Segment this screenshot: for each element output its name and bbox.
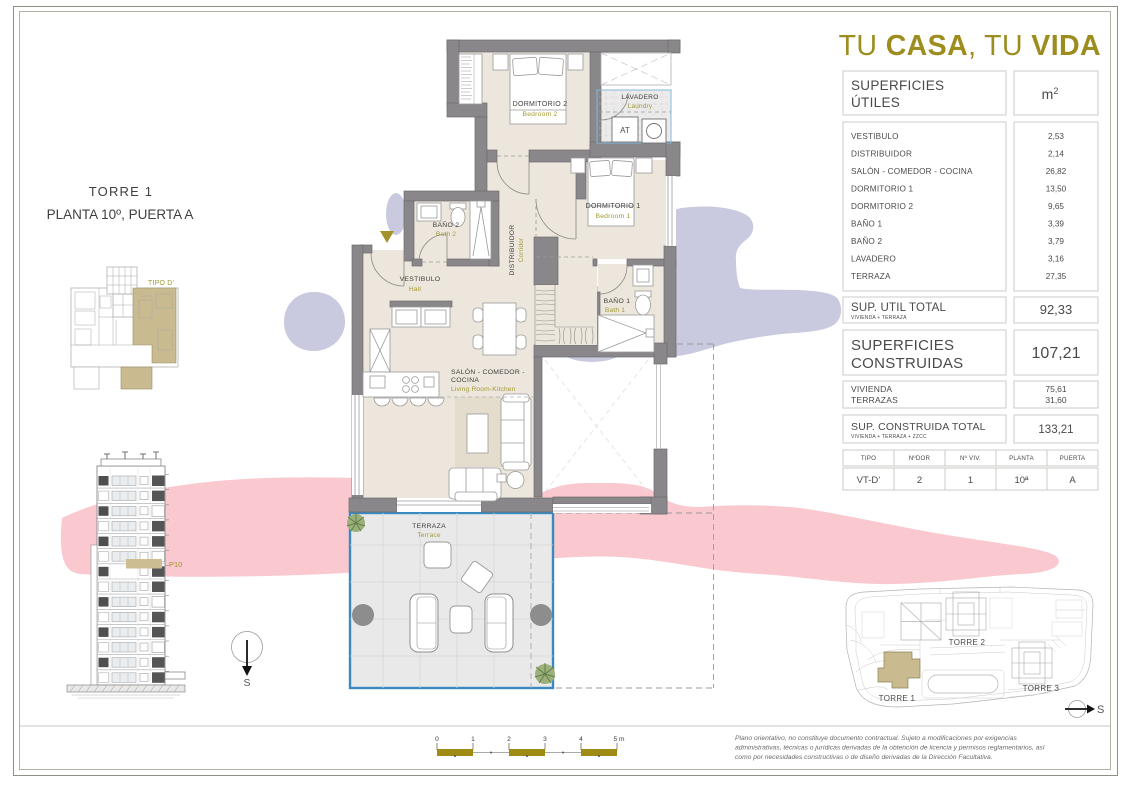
svg-text:PLANTA 10º, PUERTA A: PLANTA 10º, PUERTA A xyxy=(47,207,194,222)
svg-text:PUERTA: PUERTA xyxy=(1060,455,1086,462)
svg-text:92,33: 92,33 xyxy=(1040,302,1073,317)
svg-text:5 m: 5 m xyxy=(614,736,625,743)
svg-text:BAÑO 2: BAÑO 2 xyxy=(851,236,882,246)
svg-text:133,21: 133,21 xyxy=(1038,424,1073,436)
svg-text:TERRAZA: TERRAZA xyxy=(412,523,446,530)
svg-text:DISTRIBUIDOR: DISTRIBUIDOR xyxy=(851,150,912,159)
svg-text:CONSTRUIDAS: CONSTRUIDAS xyxy=(851,355,963,372)
svg-text:SUPERFICIES: SUPERFICIES xyxy=(851,78,944,93)
svg-text:DORMITORIO 2: DORMITORIO 2 xyxy=(851,202,914,211)
svg-text:TERRAZA: TERRAZA xyxy=(851,272,891,281)
svg-text:VIVIENDA + TERRAZA: VIVIENDA + TERRAZA xyxy=(851,315,907,321)
svg-text:75,61: 75,61 xyxy=(1045,384,1067,394)
svg-text:Plano orientativo, no constitu: Plano orientativo, no constituye documen… xyxy=(735,735,1017,742)
svg-text:TERRAZAS: TERRAZAS xyxy=(851,395,898,405)
svg-text:A: A xyxy=(1069,475,1076,486)
svg-text:26,82: 26,82 xyxy=(1046,167,1067,176)
svg-text:TIPO: TIPO xyxy=(861,455,876,462)
svg-text:SALÓN - COMEDOR -: SALÓN - COMEDOR - xyxy=(451,367,525,376)
svg-text:SALÓN - COMEDOR - COCINA: SALÓN - COMEDOR - COCINA xyxy=(851,166,973,176)
svg-text:BAÑO 1: BAÑO 1 xyxy=(851,219,882,229)
svg-text:S: S xyxy=(243,677,250,689)
svg-text:DORMITORIO 1: DORMITORIO 1 xyxy=(586,203,641,210)
svg-text:SUP. UTIL TOTAL: SUP. UTIL TOTAL xyxy=(851,302,946,314)
svg-text:Corridor: Corridor xyxy=(518,237,525,262)
svg-text:3,79: 3,79 xyxy=(1048,237,1064,246)
svg-text:31,60: 31,60 xyxy=(1045,395,1067,405)
svg-text:Living Room-Kitchen: Living Room-Kitchen xyxy=(451,386,516,393)
svg-text:2: 2 xyxy=(507,736,511,743)
svg-text:3: 3 xyxy=(543,736,547,743)
svg-text:como por necesidades construct: como por necesidades constructivas o de … xyxy=(735,754,993,761)
svg-text:VESTIBULO: VESTIBULO xyxy=(400,276,441,283)
svg-text:Bath 1: Bath 1 xyxy=(605,307,625,314)
svg-text:1: 1 xyxy=(471,736,475,743)
svg-text:P10: P10 xyxy=(169,560,182,569)
svg-text:TORRE 1: TORRE 1 xyxy=(89,184,154,199)
svg-text:S: S xyxy=(1097,704,1104,716)
svg-text:Bedroom 2: Bedroom 2 xyxy=(522,111,557,118)
svg-text:Terrace: Terrace xyxy=(417,532,441,539)
svg-text:DORMITORIO 1: DORMITORIO 1 xyxy=(851,185,914,194)
svg-text:1: 1 xyxy=(968,475,973,486)
svg-text:Nº VIV.: Nº VIV. xyxy=(960,455,981,462)
svg-text:107,21: 107,21 xyxy=(1032,345,1081,362)
svg-text:BAÑO 1: BAÑO 1 xyxy=(604,296,631,305)
svg-text:3,16: 3,16 xyxy=(1048,255,1064,264)
svg-text:VIVIENDA: VIVIENDA xyxy=(851,384,892,394)
svg-text:TORRE 3: TORRE 3 xyxy=(1023,684,1060,693)
svg-text:27,35: 27,35 xyxy=(1046,272,1067,281)
svg-text:DISTRIBUIDOR: DISTRIBUIDOR xyxy=(509,225,516,276)
svg-text:administrativas, técnicas o ju: administrativas, técnicas o jurídicas de… xyxy=(735,745,1046,752)
svg-text:2,53: 2,53 xyxy=(1048,132,1064,141)
svg-text:VIVIENDA + TERRAZA + ZZCC: VIVIENDA + TERRAZA + ZZCC xyxy=(851,434,927,440)
svg-text:PLANTA: PLANTA xyxy=(1009,455,1034,462)
svg-text:9,65: 9,65 xyxy=(1048,202,1064,211)
svg-text:Laundry: Laundry xyxy=(628,103,653,110)
svg-text:NºDOR: NºDOR xyxy=(909,455,931,462)
svg-text:ÚTILES: ÚTILES xyxy=(851,95,900,110)
svg-text:TORRE 2: TORRE 2 xyxy=(949,638,986,647)
svg-text:DORMITORIO 2: DORMITORIO 2 xyxy=(513,101,568,108)
svg-text:VESTIBULO: VESTIBULO xyxy=(851,132,899,141)
svg-text:3,39: 3,39 xyxy=(1048,220,1064,229)
svg-text:TORRE 1: TORRE 1 xyxy=(879,694,916,703)
svg-text:2,14: 2,14 xyxy=(1048,150,1064,159)
svg-text:4: 4 xyxy=(579,736,583,743)
svg-text:Bedroom 1: Bedroom 1 xyxy=(595,213,630,220)
svg-text:LAVADERO: LAVADERO xyxy=(621,94,658,101)
svg-text:AT: AT xyxy=(620,126,630,135)
svg-text:10ª: 10ª xyxy=(1014,475,1029,486)
svg-text:13,50: 13,50 xyxy=(1046,185,1067,194)
svg-text:SUP. CONSTRUIDA TOTAL: SUP. CONSTRUIDA TOTAL xyxy=(851,421,986,433)
svg-text:TU CASA, TU VIDA: TU CASA, TU VIDA xyxy=(839,30,1101,62)
svg-text:Hall: Hall xyxy=(409,286,421,293)
svg-text:2: 2 xyxy=(917,475,922,486)
svg-text:VT-D’: VT-D’ xyxy=(857,475,881,486)
svg-text:COCINA: COCINA xyxy=(451,377,479,384)
svg-text:BAÑO 2: BAÑO 2 xyxy=(433,220,460,229)
svg-text:LAVADERO: LAVADERO xyxy=(851,255,896,264)
svg-text:TIPO D’: TIPO D’ xyxy=(148,280,175,287)
svg-text:Bath 2: Bath 2 xyxy=(436,231,456,238)
svg-text:SUPERFICIES: SUPERFICIES xyxy=(851,337,954,354)
svg-text:0: 0 xyxy=(435,736,439,743)
